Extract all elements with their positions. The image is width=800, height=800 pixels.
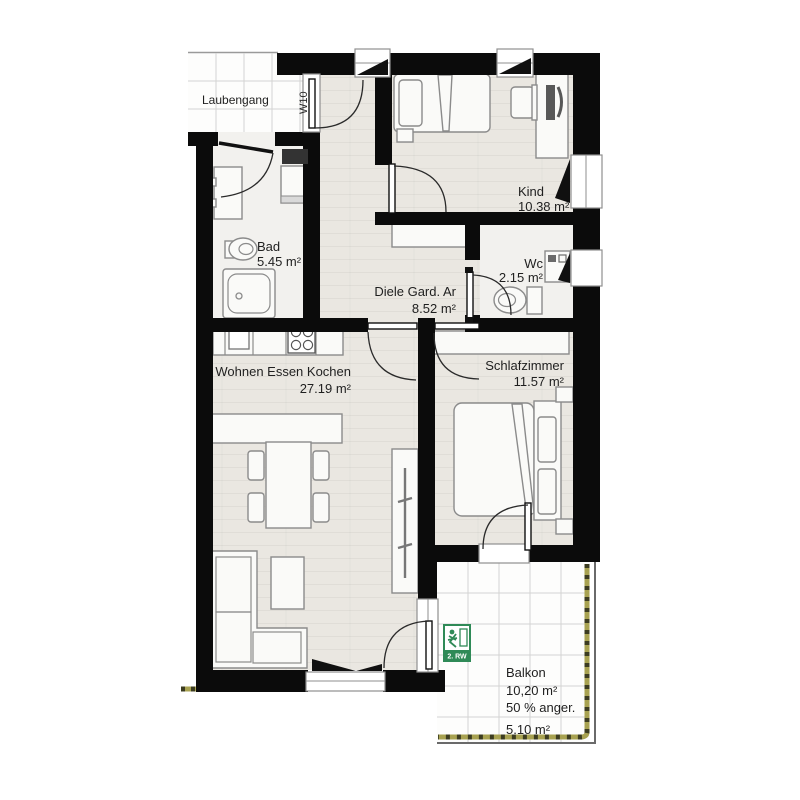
- wc-toilet-tank: [527, 287, 542, 314]
- room-area-kind: 10.38 m²: [518, 199, 570, 214]
- wohnen-chair: [248, 493, 264, 522]
- wohnen-chair: [313, 493, 329, 522]
- wohnen-balcony-door-leaf: [426, 621, 432, 669]
- schlaf-nightstand: [556, 387, 573, 402]
- kind-door-leaf: [389, 164, 395, 213]
- unit-label: W10: [298, 91, 310, 114]
- kind-monitor-icon: [546, 85, 555, 120]
- wc-window: [571, 250, 602, 286]
- schlaf-pillow: [538, 417, 556, 462]
- kind-chair: [511, 87, 534, 118]
- room-area-bad: 5.45 m²: [257, 254, 302, 269]
- wohnen-door-leaf: [368, 323, 417, 329]
- room-area-wc: 2.15 m²: [499, 270, 544, 285]
- wohnen-chair: [313, 451, 329, 480]
- running-person-icon: [450, 630, 455, 635]
- kind-bedside-box: [397, 129, 413, 142]
- schlaf-pillow: [538, 469, 556, 514]
- wc-door-leaf: [467, 272, 473, 318]
- duct-shaft: [282, 149, 308, 164]
- room-label-laubengang: Laubengang: [202, 93, 269, 107]
- room-label-balkon: Balkon: [506, 665, 546, 680]
- schlaf-balcony-door-leaf: [525, 503, 531, 550]
- floorplan-canvas: 2. RW Laubengang W10 Kind 10.38 m² Bad 5…: [0, 0, 800, 800]
- escape-route-icon: 2. RW: [444, 625, 470, 661]
- wohnen-sideboard: [208, 414, 342, 443]
- floorplan-svg: 2. RW Laubengang W10 Kind 10.38 m² Bad 5…: [0, 0, 800, 800]
- room-area-diele: 8.52 m²: [412, 301, 457, 316]
- wohnen-table: [266, 442, 311, 528]
- wohnen-side-table: [271, 557, 304, 609]
- room-label-diele: Diele Gard. Ar: [374, 284, 456, 299]
- schlaf-door-leaf: [435, 323, 479, 329]
- room-label-wohnen: Wohnen Essen Kochen: [215, 364, 351, 379]
- schlaf-wardrobe: [429, 331, 569, 354]
- schlaf-nightstand: [556, 519, 573, 534]
- room-area-balkon: 10,20 m²: [506, 683, 558, 698]
- wohnen-chair: [248, 451, 264, 480]
- room-label-schlafzimmer: Schlafzimmer: [485, 358, 564, 373]
- kind-pillow: [399, 80, 422, 126]
- room-label-wc: Wc: [524, 256, 543, 271]
- kind-chair-back: [532, 85, 537, 120]
- room-area-schlafzimmer: 11.57 m²: [514, 374, 565, 389]
- room-label-kind: Kind: [518, 184, 544, 199]
- escape-route-label: 2. RW: [447, 654, 467, 661]
- room-note-balkon: 50 % anger.: [506, 700, 575, 715]
- room-counted-area-balkon: 5.10 m²: [506, 722, 551, 737]
- room-area-wohnen: 27.19 m²: [300, 381, 352, 396]
- room-label-bad: Bad: [257, 239, 280, 254]
